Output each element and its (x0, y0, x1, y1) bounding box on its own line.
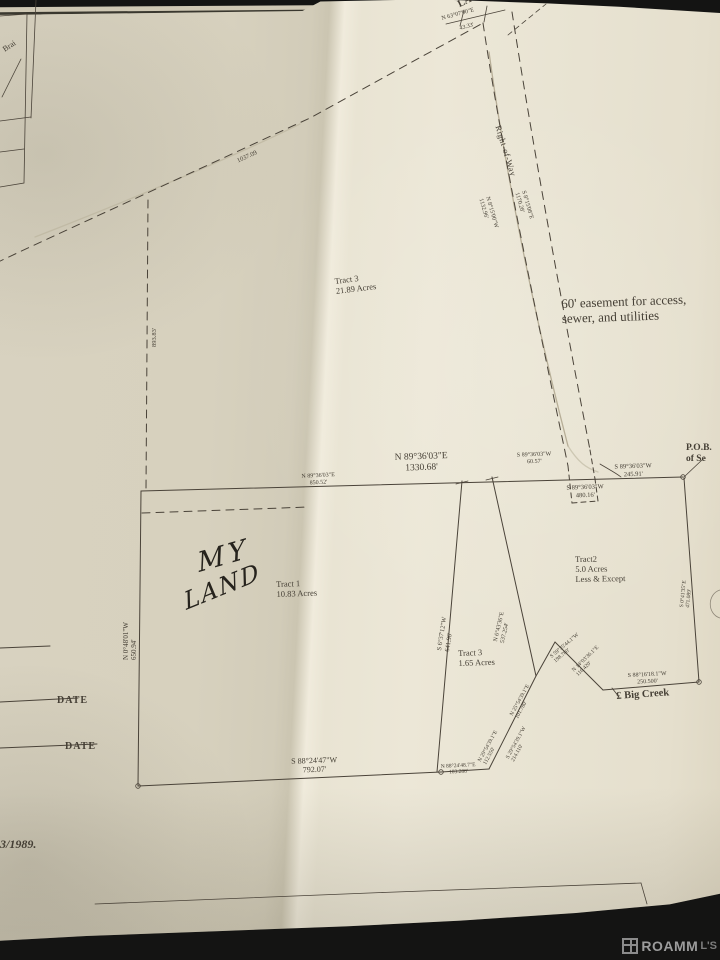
roamm-logo-icon (622, 938, 638, 954)
label-west-bearing-tract1: N 0°48'01"W 650.94' (122, 622, 139, 660)
sheet-bottom-border (95, 590, 720, 904)
vicinity-map-inset (0, 0, 36, 187)
label-mid-bearing-6057: S 89°36'03"W 60.57' (517, 451, 552, 466)
photo-of-survey-plat: LA 10N 63°07'00"E43.33'Right-of-WayN 8°1… (0, 0, 720, 960)
north-boundary-dashed-line (0, 23, 483, 263)
label-south-bearing-tract1: S 88°24'47"W 792.07' (291, 755, 338, 775)
label-easement-note: 60' easement for access, sewer, and util… (561, 292, 687, 327)
label-mid-bearing-24591: S 89°36'03"W 245.91' (614, 462, 652, 479)
watermark-brand: ROAMM (641, 938, 698, 954)
label-pob: P.O.B. of Se (686, 443, 712, 465)
tract3-strip-east-line (492, 477, 536, 676)
label-mid-bearing-85052: N 89°36'03"E 850.52' (301, 472, 335, 488)
label-distance-893: 893.83' (151, 328, 159, 347)
label-tract3-small: Tract 3 1.65 Acres (458, 647, 495, 668)
corner-point-markers (136, 475, 702, 789)
watermark: ROAMM L'S (622, 938, 717, 954)
label-date-1: DATE (57, 695, 88, 707)
tract1-boundary (138, 481, 462, 786)
label-date-2: DATE (65, 741, 96, 753)
label-mid-bearing-main: N 89°36'03"E 1330.68' (395, 451, 449, 475)
watermark-suffix: L'S (700, 940, 717, 952)
right-of-way-dashed-lines (483, 12, 590, 466)
label-tract1: Tract 1 10.83 Acres (276, 578, 317, 599)
label-south-bearing-2: N 88°24'48.7"E 103.288' (441, 762, 476, 777)
tract3-west-dashed-line (146, 200, 148, 489)
label-tract2: Tract2 5.0 Acres Less & Except (575, 553, 626, 584)
plat-drawing (0, 0, 720, 960)
label-creek-bearing-3: S 88°16'18.1"W 250.500' (628, 671, 668, 687)
label-plat-date: 3/1989. (0, 837, 36, 851)
label-mid-bearing-48016: S 89°36'03"W 480.16' (566, 483, 604, 500)
